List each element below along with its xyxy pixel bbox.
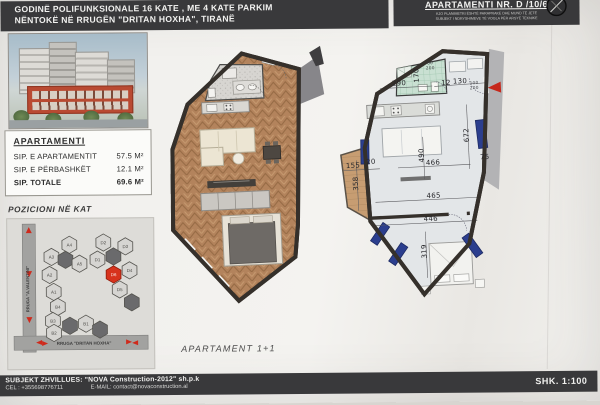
dimension-label: 490	[417, 148, 426, 163]
keyplan-unit-label: D4	[127, 268, 133, 273]
dimension-label: 319	[420, 244, 429, 259]
dimension-label: 75	[480, 153, 490, 161]
dimension-label: 672	[462, 128, 471, 143]
drawing-scale: SHK. 1:100	[535, 376, 587, 386]
dimension-label: 358	[352, 176, 361, 191]
podium-block	[27, 85, 133, 114]
dimensioned-floor-plan: 2901701213010020080200672155203584904667…	[330, 40, 527, 321]
dimension-label: 465	[426, 191, 441, 200]
keyplan-unit-label: B3	[50, 319, 56, 324]
apartment-type-caption: APARTAMENT 1+1	[181, 343, 276, 354]
dimension-label: 200	[470, 85, 479, 90]
dimension-label: 200	[426, 65, 435, 70]
dimension-label: 130	[453, 77, 468, 86]
building-render-photo	[8, 32, 149, 129]
keyplan-unit	[63, 317, 78, 334]
info-title: APARTAMENTI	[13, 135, 143, 146]
keyplan-unit-label: D2	[100, 240, 106, 245]
dimension-label: 466	[426, 158, 441, 167]
keyplan-unit-label: A4	[67, 242, 73, 247]
dimension-label: 170	[412, 68, 421, 83]
dimension-label: 446	[423, 215, 438, 224]
project-title-bar: GODINË POLIFUNKSIONALE 16 KATE , ME 4 KA…	[0, 0, 388, 31]
area-row: SIP. E APARTAMENTIT 57.5 M²	[14, 149, 144, 163]
keyplan-unit-label: D3	[123, 244, 129, 249]
paper-fold-line	[547, 25, 553, 369]
keyplan-unit-label: A3	[49, 255, 55, 260]
furnished-floor-plan	[156, 42, 336, 311]
keyplan-unit	[124, 294, 139, 311]
apartment-info-box: APARTAMENTI SIP. E APARTAMENTIT 57.5 M² …	[4, 129, 152, 196]
dimension-label: 155	[346, 161, 361, 170]
keyplan-unit-label: B4	[55, 305, 61, 310]
keyplan-unit-label: A1	[51, 290, 57, 295]
north-arrow-icon	[543, 0, 569, 21]
developer-email: E-MAIL: contact@novaconstruction.al	[91, 384, 188, 391]
keyplan-unit-label: A2	[47, 273, 53, 278]
dimension-label: 20	[366, 158, 376, 166]
floor-key-plan: RRUGA "A.VALENTINI" RRUGA "DRITAN HOXHA"…	[6, 217, 155, 370]
keyplan-unit-label: D1	[95, 257, 101, 262]
dimension-labels: 2901701213010020080200672155203584904667…	[330, 40, 527, 321]
road	[9, 119, 147, 128]
area-row-total: SIP. TOTALE 69.6 M²	[14, 175, 144, 189]
scanned-floor-plan-sheet: GODINË POLIFUNKSIONALE 16 KATE , ME 4 KA…	[0, 0, 600, 405]
position-on-floor-title: POZICIONI NË KAT	[8, 205, 92, 215]
keyplan-unit-label: D6	[111, 272, 117, 277]
keyplan-unit	[58, 251, 73, 268]
project-title-line2: NËNTOKË NË RRUGËN "DRITAN HOXHA", TIRANË	[15, 12, 389, 26]
keyplan-unit-label: D5	[117, 287, 123, 292]
keyplan-unit-label: B1	[83, 321, 89, 326]
street-bottom-label: RRUGA "DRITAN HOXHA"	[57, 340, 112, 345]
keyplan-unit-label: A5	[77, 261, 83, 266]
keyplan-unit-label: B2	[51, 331, 57, 336]
developer-phone: CEL : +355698776711	[5, 385, 63, 391]
area-row: SIP. E PËRBASHKËT 12.1 M²	[14, 162, 144, 176]
dimension-label: 12	[441, 79, 451, 87]
developer-footer-bar: SUBJEKT ZHVILLUES: "NOVA Construction-20…	[0, 371, 598, 397]
dimension-label: 290	[392, 79, 407, 88]
street-left-label: RRUGA "A.VALENTINI"	[25, 266, 30, 312]
